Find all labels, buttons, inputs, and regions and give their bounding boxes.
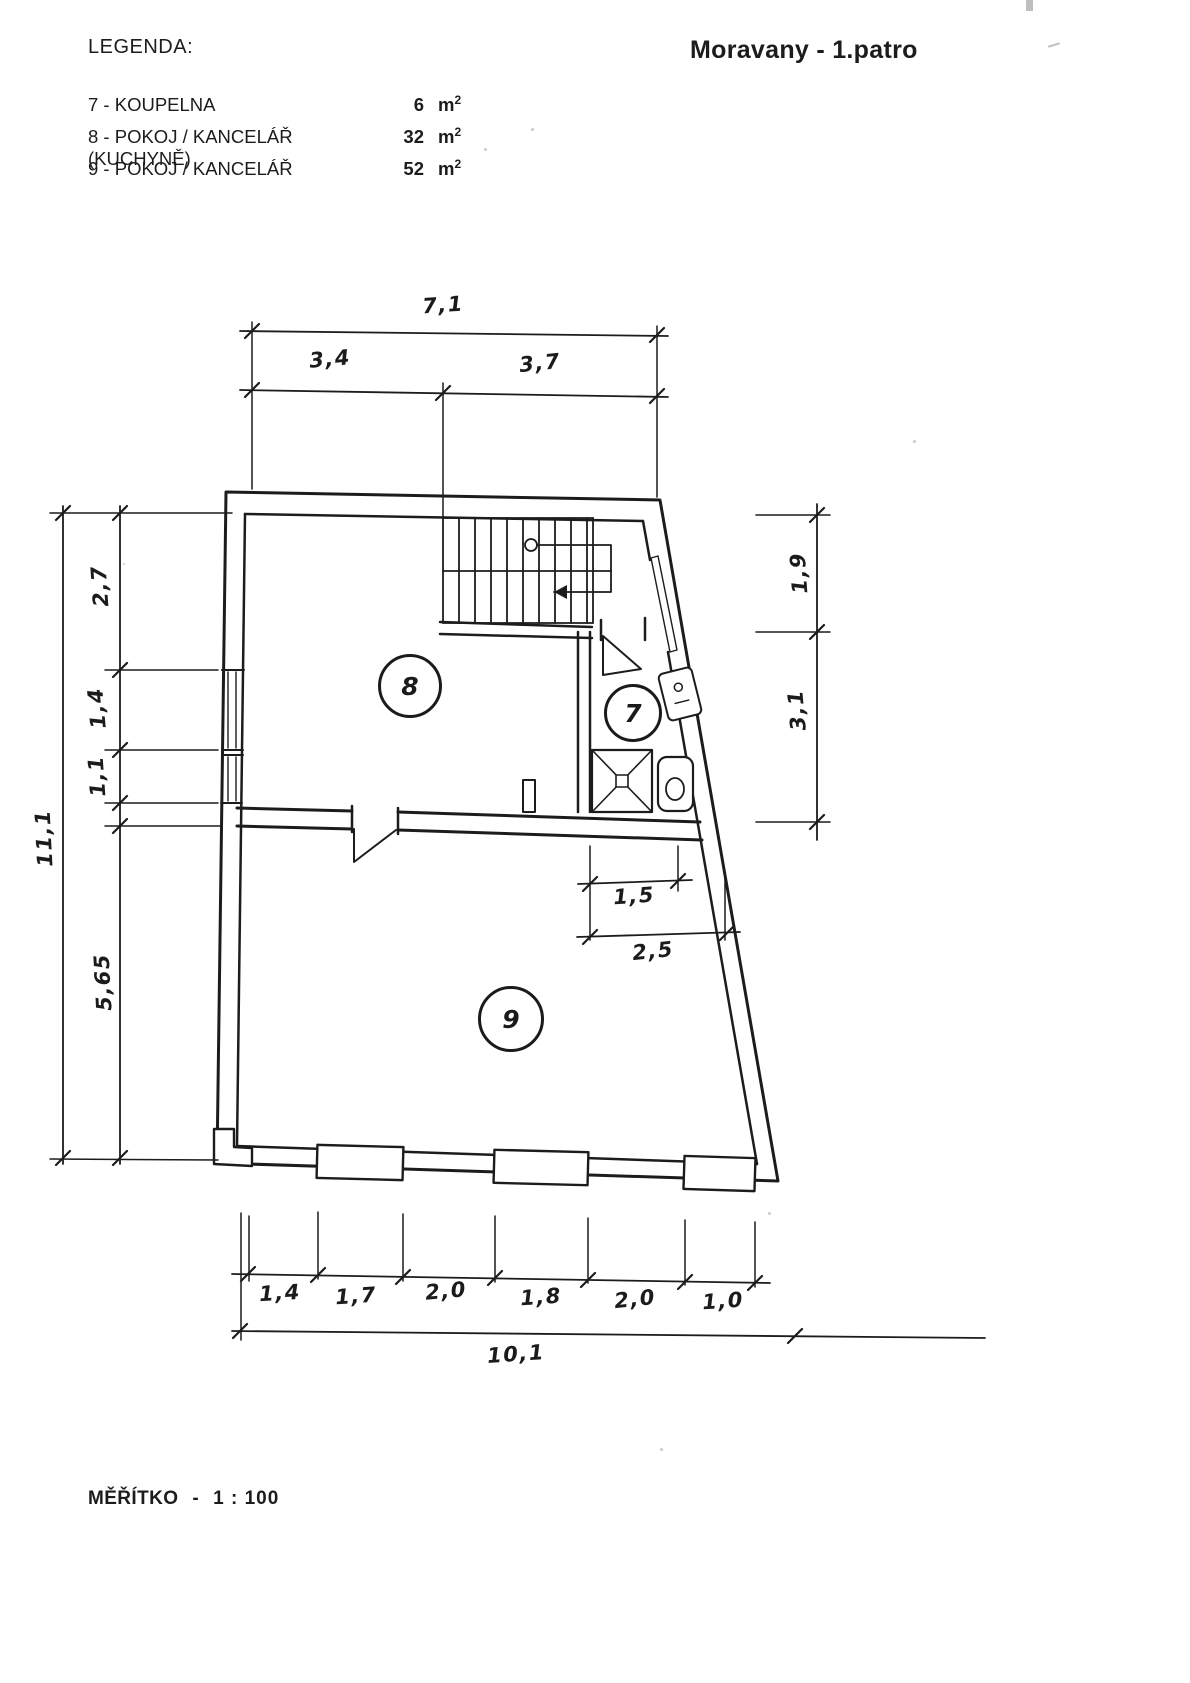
sink (658, 667, 703, 722)
dim-left-seg-4: 5,65 (90, 952, 117, 1011)
scan-speck (123, 563, 125, 565)
dim-bottom-seg-5: 2,0 (613, 1285, 657, 1313)
dim-bottom-seg-4: 1,8 (519, 1284, 562, 1311)
dim-inner-seg-1: 1,5 (612, 883, 655, 910)
dim-bottom-total: 10,1 (486, 1340, 545, 1368)
dim-right-seg-1: 1,9 (786, 551, 813, 594)
scan-speck (660, 1448, 663, 1451)
scale-separator: - (192, 1488, 199, 1509)
room9-door-leaf (354, 829, 396, 862)
room-label-9: 9 (478, 986, 544, 1052)
dim-bottom-seg-3: 2,0 (424, 1277, 468, 1305)
dim-top-total: 7,1 (421, 292, 464, 319)
scanned-floor-plan-page: LEGENDA: 7 - KOUPELNA 6 m2 8 - POKOJ / K… (0, 0, 1190, 1683)
bottom-dimension-lines (232, 1212, 985, 1343)
scan-speck (531, 128, 534, 131)
dim-bottom-seg-2: 1,7 (334, 1283, 377, 1310)
dim-bottom-seg-6: 1,0 (701, 1288, 744, 1315)
dim-right-seg-2: 3,1 (783, 688, 811, 732)
window (317, 1145, 404, 1180)
window (494, 1150, 589, 1185)
dim-left-seg-3: 1,1 (84, 754, 111, 797)
staircase (443, 518, 611, 623)
top-dimension-lines (240, 322, 668, 516)
scale-value: 1 : 100 (213, 1488, 279, 1509)
dim-inner-seg-2: 2,5 (631, 937, 675, 965)
toilet (658, 757, 693, 811)
dim-bottom-seg-1: 1,4 (259, 1280, 302, 1306)
bathroom-door-leaf (603, 636, 641, 675)
scan-speck (484, 148, 487, 151)
window (683, 1156, 755, 1191)
scale-label: MĚŘÍTKO (88, 1488, 178, 1509)
room-label-7: 7 (604, 684, 662, 742)
dim-left-seg-1: 2,7 (87, 564, 114, 607)
dim-left-seg-2: 1,4 (83, 686, 111, 730)
window (214, 1129, 252, 1166)
dim-left-total: 11,1 (31, 808, 58, 867)
room-label-8: 8 (378, 654, 442, 718)
building-outline (217, 492, 778, 1181)
floor-plan-drawing (0, 0, 1190, 1683)
stair-direction-arrow (554, 585, 567, 599)
understairs-wall (440, 618, 645, 640)
stair-walkline-start (525, 539, 537, 551)
dim-top-seg-2: 3,7 (518, 349, 562, 377)
scale-note: MĚŘÍTKO-1 : 100 (88, 1488, 279, 1510)
bathroom-wall (523, 632, 590, 812)
left-dimension-lines (50, 506, 232, 1165)
shower (592, 750, 652, 812)
dim-top-seg-1: 3,4 (308, 345, 352, 373)
scan-speck (768, 1212, 771, 1215)
stair-walkline (537, 545, 611, 592)
scan-streak (1026, 0, 1033, 11)
scan-speck (913, 440, 916, 443)
